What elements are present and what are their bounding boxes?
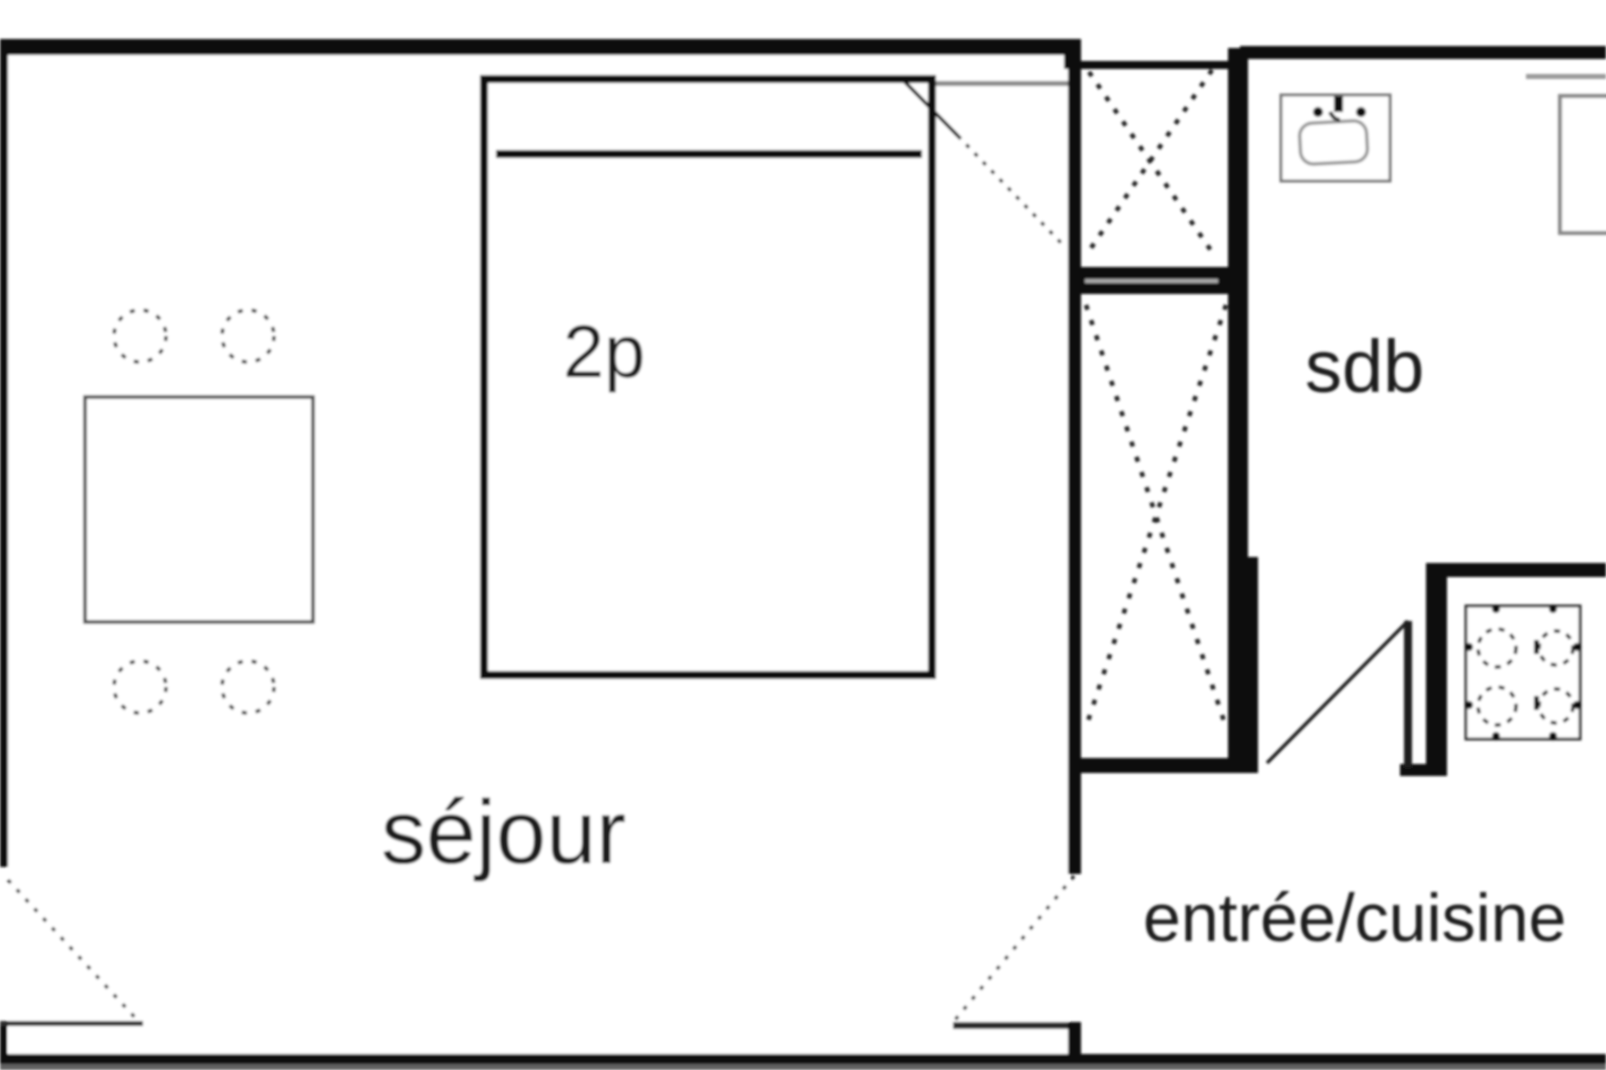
- svg-text:2p: 2p: [563, 310, 645, 393]
- svg-text:entrée/cuisine: entrée/cuisine: [1143, 880, 1566, 956]
- svg-text:sdb: sdb: [1305, 325, 1424, 408]
- svg-text:séjour: séjour: [381, 783, 626, 883]
